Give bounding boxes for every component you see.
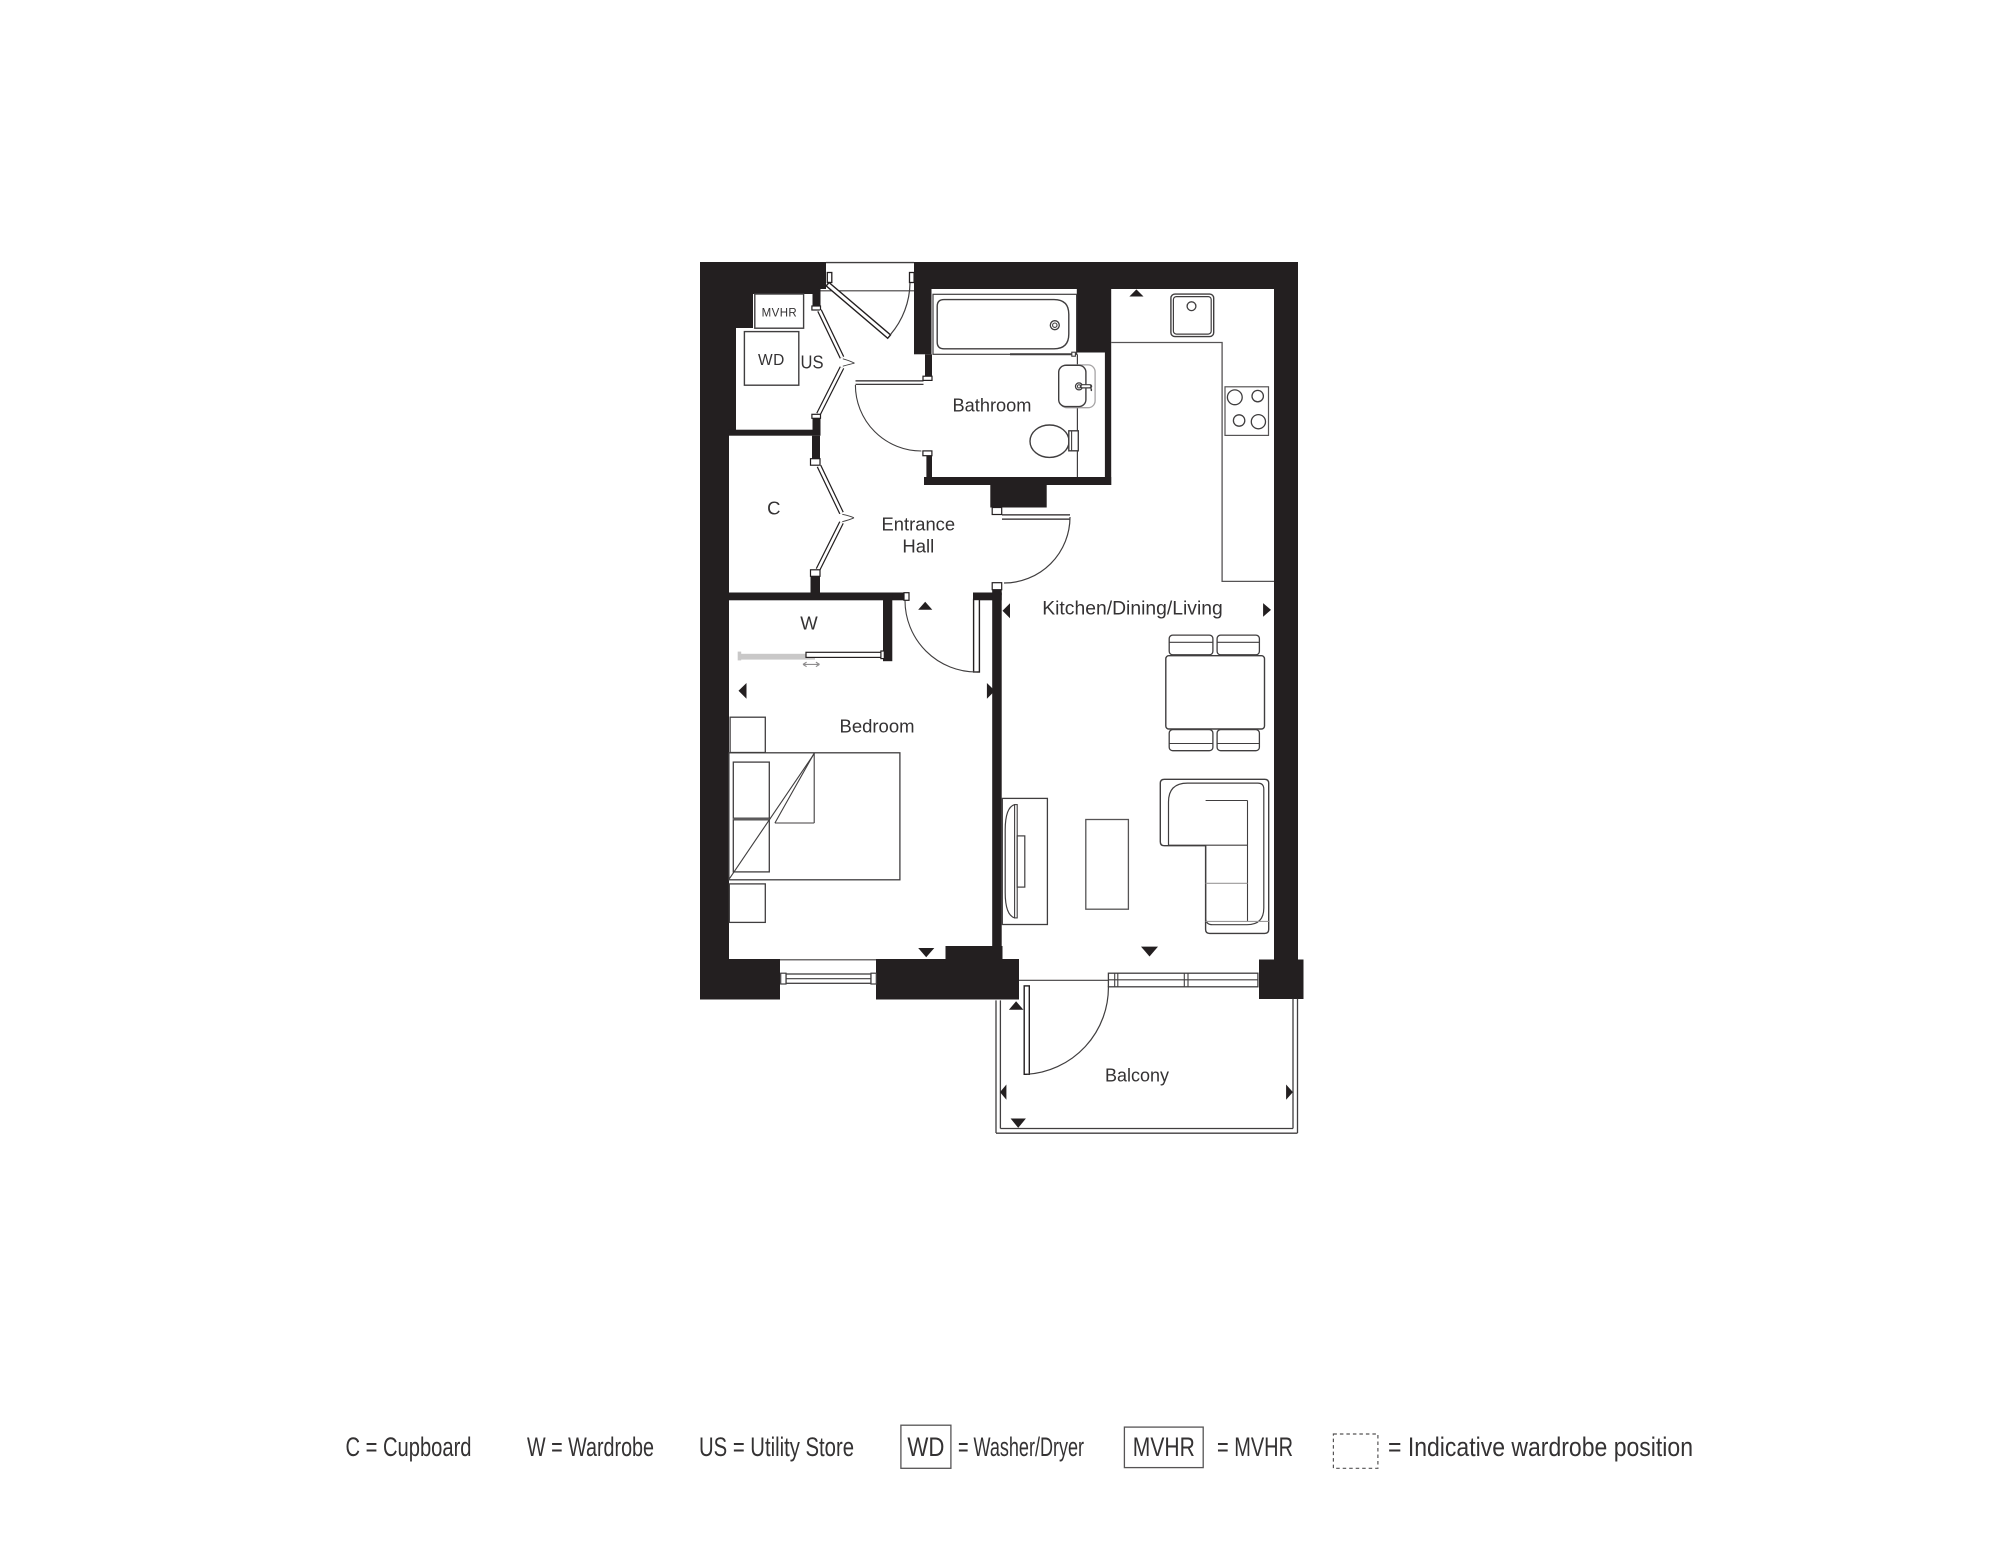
svg-text:= Washer/Dryer: = Washer/Dryer — [958, 1432, 1084, 1462]
svg-text:C = Cupboard: C = Cupboard — [346, 1432, 472, 1462]
svg-text:US: US — [801, 352, 824, 373]
svg-text:= MVHR: = MVHR — [1217, 1432, 1293, 1462]
svg-text:Balcony: Balcony — [1105, 1065, 1170, 1086]
svg-text:WD: WD — [758, 352, 785, 369]
svg-text:W = Wardrobe: W = Wardrobe — [527, 1432, 654, 1462]
svg-text:MVHR: MVHR — [1133, 1432, 1195, 1462]
svg-text:MVHR: MVHR — [762, 308, 797, 320]
svg-text:Kitchen/Dining/Living: Kitchen/Dining/Living — [1042, 599, 1223, 620]
svg-text:W: W — [800, 613, 818, 634]
svg-text:Entrance: Entrance — [882, 514, 956, 535]
svg-text:Hall: Hall — [902, 536, 934, 557]
svg-text:US = Utility Store: US = Utility Store — [699, 1432, 854, 1462]
svg-text:= Indicative wardrobe position: = Indicative wardrobe position — [1388, 1432, 1693, 1462]
svg-text:C: C — [767, 498, 780, 519]
svg-text:WD: WD — [907, 1432, 944, 1462]
svg-text:Bathroom: Bathroom — [953, 395, 1032, 416]
svg-text:Bedroom: Bedroom — [840, 716, 915, 737]
